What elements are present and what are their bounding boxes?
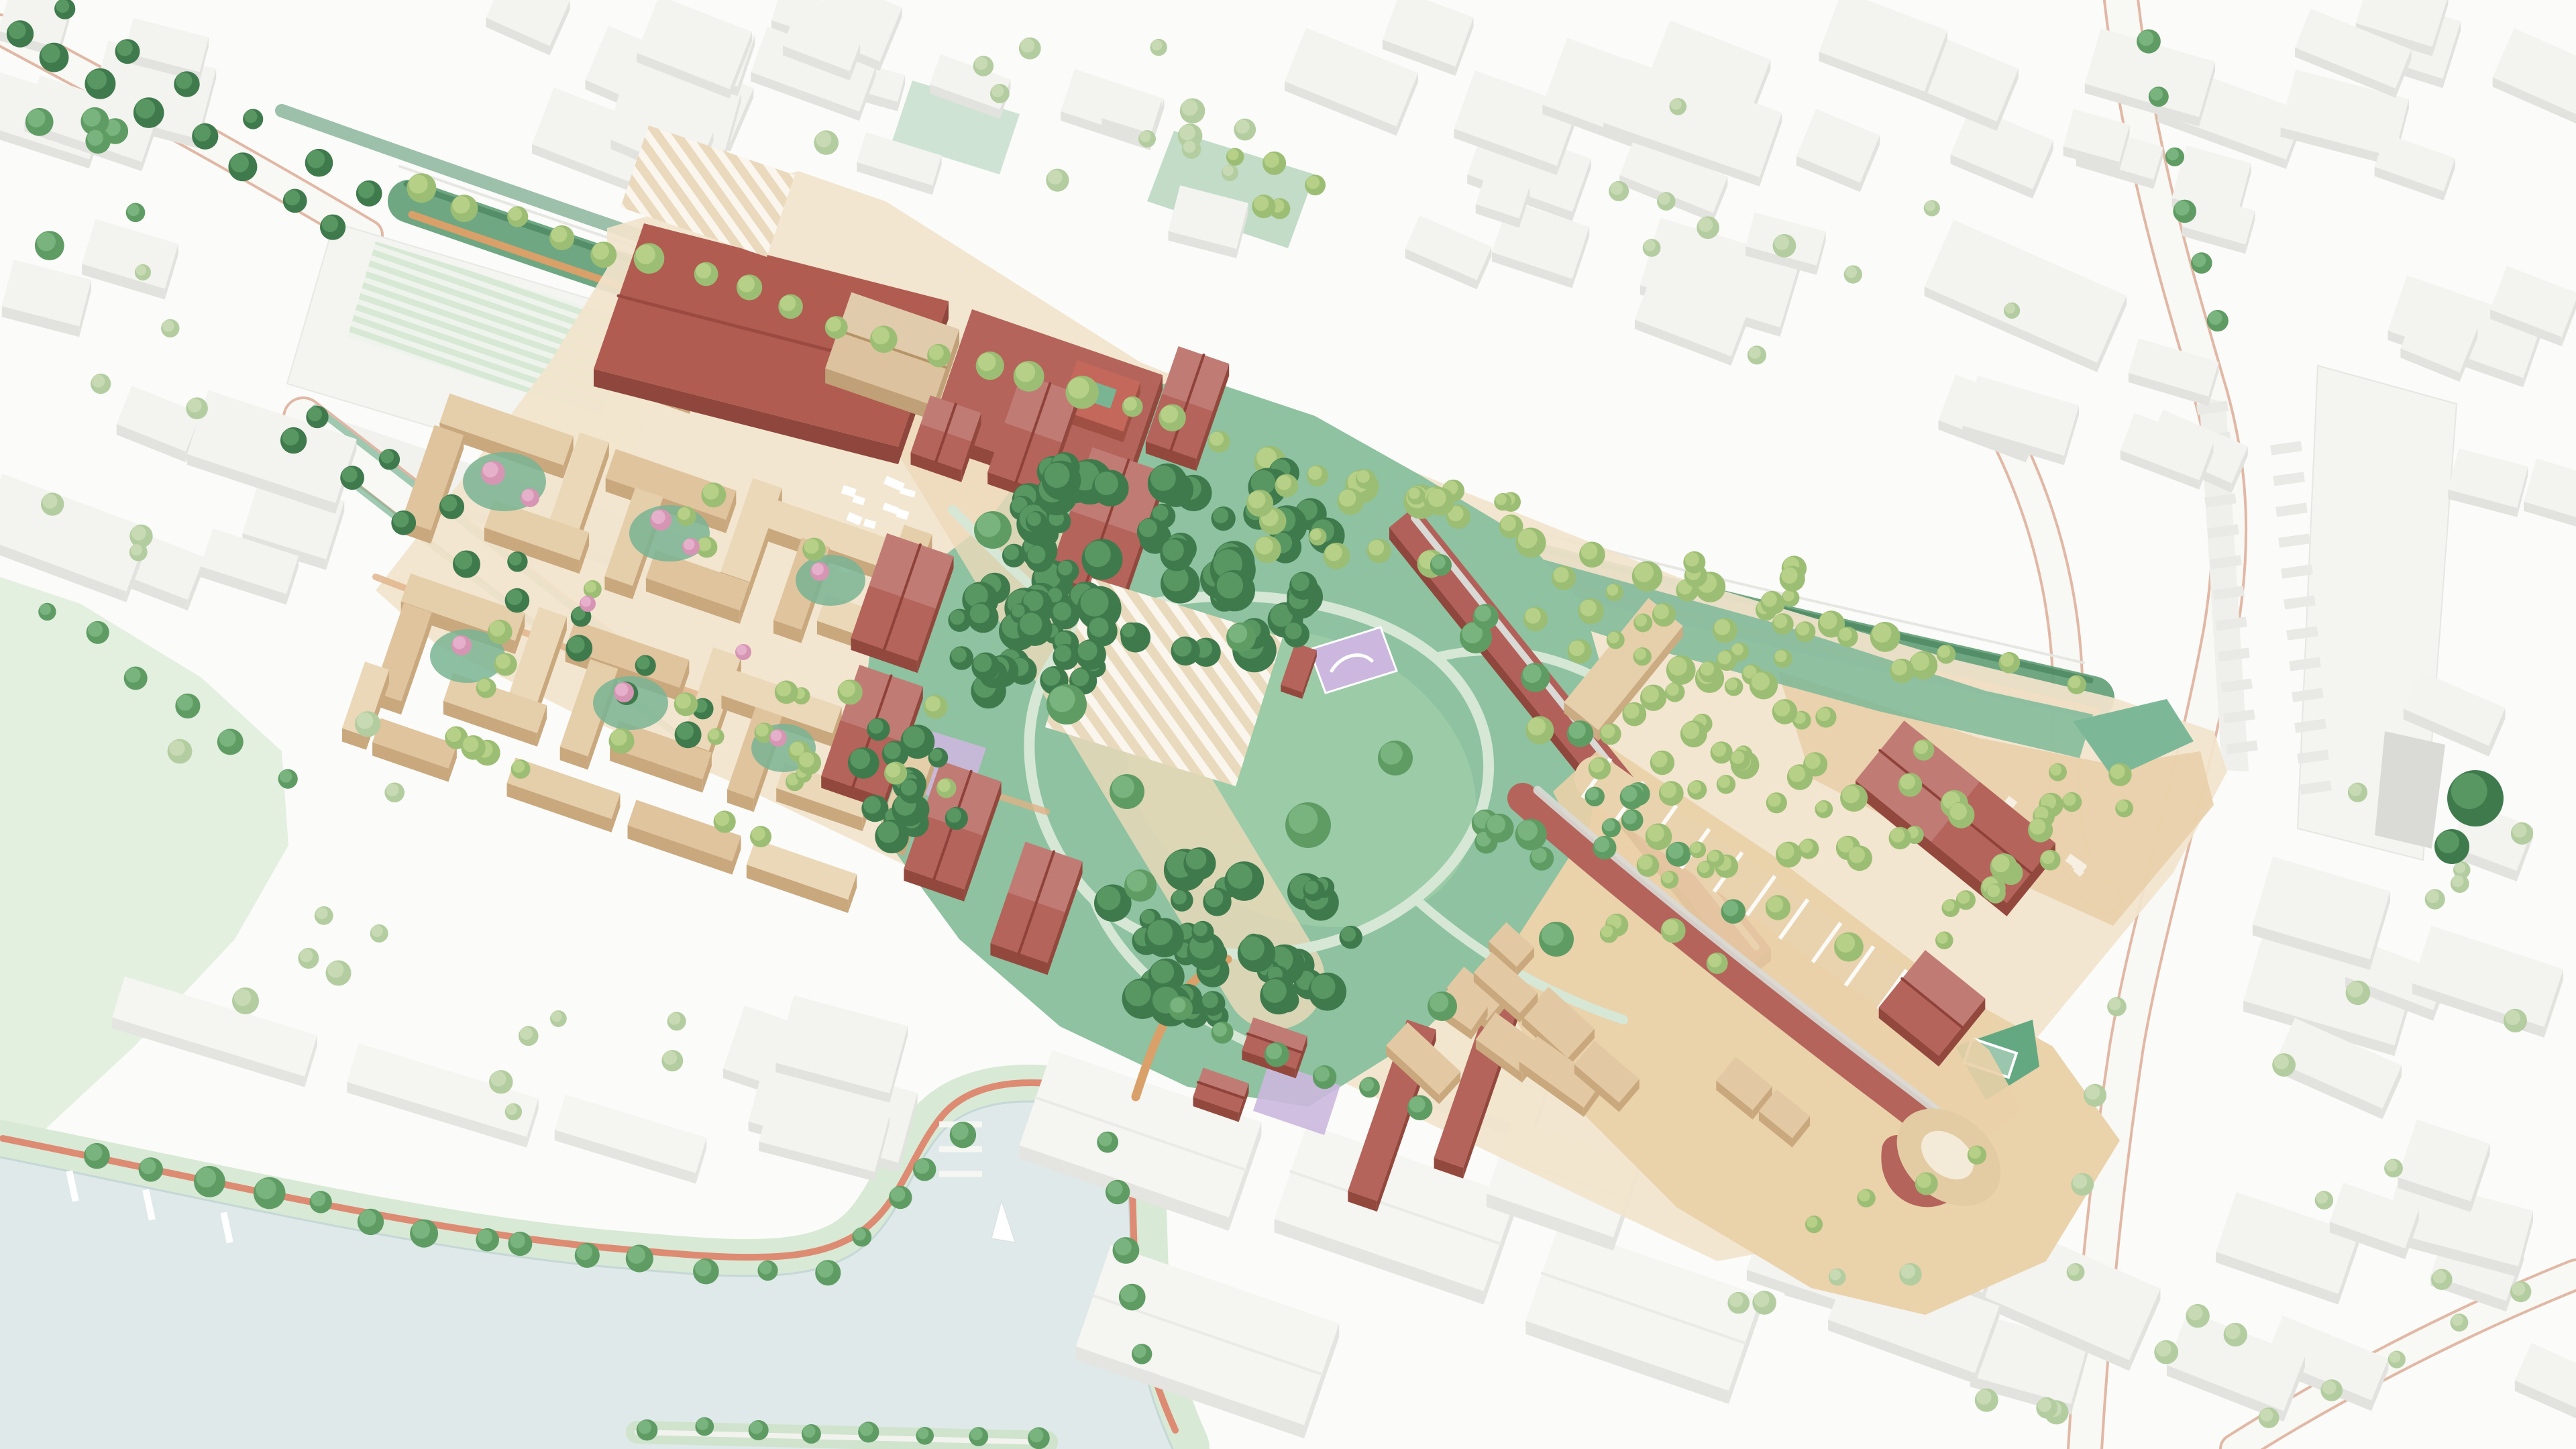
tree-crown-highlight <box>1568 722 1585 739</box>
tree-crown-highlight <box>2512 824 2526 838</box>
tree-crown-highlight <box>2426 890 2439 903</box>
tree-crown-highlight <box>903 727 925 749</box>
tree-crown-highlight <box>1858 1190 1870 1201</box>
tree-crown-highlight <box>452 196 470 213</box>
tree-crown-highlight <box>2452 1314 2463 1326</box>
tree-crown-highlight <box>463 737 478 752</box>
tree-crown-highlight <box>676 722 694 740</box>
platform-canopy-b <box>2278 533 2310 547</box>
tree-crown-highlight <box>826 317 841 332</box>
tree-crown-highlight <box>799 752 814 767</box>
masterplan-rendering <box>0 0 2576 1449</box>
tree-crown-highlight <box>2073 1174 2088 1189</box>
tree-crown-highlight <box>1662 920 1678 936</box>
tree-crown-highlight <box>230 154 249 172</box>
tree-crown-highlight <box>1749 347 1761 359</box>
tree-crown-highlight <box>1213 508 1228 523</box>
tree-crown-highlight <box>1495 494 1507 505</box>
quay-shed <box>112 977 317 1077</box>
tree-crown-highlight <box>739 276 755 292</box>
tree-crown-highlight <box>1357 470 1370 483</box>
tree-crown-highlight <box>2452 875 2464 888</box>
tree-crown-highlight <box>1783 590 1794 601</box>
tree-crown-highlight <box>1525 608 1540 623</box>
tree-crown-highlight <box>1020 38 1034 52</box>
tree-crown-highlight <box>1774 235 1789 250</box>
tree-crown-highlight <box>1140 131 1151 142</box>
tree-crown-highlight <box>1028 545 1046 563</box>
tree-crown-highlight <box>1172 890 1186 904</box>
tree-crown-highlight <box>1647 824 1664 841</box>
tree-crown-highlight <box>1668 657 1687 676</box>
tree-crown-highlight <box>676 694 691 709</box>
tree-crown-highlight <box>176 72 193 89</box>
tree-crown-highlight <box>1768 794 1781 807</box>
tree-crown-highlight <box>284 190 300 205</box>
tree-crown-highlight <box>1638 855 1653 870</box>
tree-crown-highlight <box>2063 793 2076 806</box>
tree-crown-highlight <box>92 375 105 388</box>
tree-crown-highlight <box>1430 993 1448 1012</box>
tree-crown-highlight <box>1789 765 1806 782</box>
tree-crown-highlight <box>360 1210 376 1227</box>
tree-crown-highlight <box>1839 628 1852 641</box>
tree-crown-highlight <box>1240 936 1265 961</box>
tree-crown-highlight <box>1151 40 1162 50</box>
tree-crown-highlight <box>1121 1285 1138 1303</box>
tree-crown-highlight <box>162 320 174 332</box>
tree-crown-highlight <box>1767 896 1783 912</box>
tree-crown-highlight <box>1108 1181 1123 1197</box>
tree-crown-highlight <box>696 1418 708 1430</box>
tree-crown-highlight <box>812 563 824 575</box>
tree-crown-highlight <box>1042 667 1060 686</box>
tree-crown-highlight <box>1845 266 1857 278</box>
tree-crown-highlight <box>1950 803 1967 820</box>
tree-crown-highlight <box>9 21 26 39</box>
courtyard-green <box>629 505 710 561</box>
tree-crown-highlight <box>2274 1055 2289 1069</box>
tree-crown-highlight <box>1055 645 1071 662</box>
tree-crown-highlight <box>1554 567 1569 582</box>
tree-crown-highlight <box>551 227 568 243</box>
tree-crown-highlight <box>1217 572 1243 598</box>
tree-crown-highlight <box>2038 1398 2051 1411</box>
tree-crown-highlight <box>1432 555 1446 570</box>
tree-crown-highlight <box>1969 1146 1981 1159</box>
tree-crown-highlight <box>1058 561 1073 576</box>
tree-crown-highlight <box>478 1230 492 1244</box>
tree-crown-highlight <box>780 295 796 311</box>
tree-crown-highlight <box>2050 764 2061 775</box>
tree-crown-highlight <box>1712 743 1726 757</box>
tree-crown-highlight <box>1542 924 1564 946</box>
tree-crown-highlight <box>1666 683 1679 696</box>
platform-canopy-b <box>2275 502 2308 517</box>
tree-crown-highlight <box>1915 741 1928 754</box>
tree-crown-highlight <box>2451 773 2487 809</box>
tree-crown-highlight <box>131 544 142 555</box>
tree-crown-highlight <box>1816 801 1827 812</box>
tree-crown-highlight <box>1658 193 1670 205</box>
tree-crown-highlight <box>1601 926 1613 938</box>
tree-crown-highlight <box>947 808 961 823</box>
tree-crown-highlight <box>1925 201 1935 211</box>
tree-crown-highlight <box>256 1179 276 1199</box>
tree-crown-highlight <box>393 512 409 528</box>
tree-crown-highlight <box>455 552 472 570</box>
tree-crown-highlight <box>1112 776 1134 798</box>
context-building <box>2493 28 2576 119</box>
tree-crown-highlight <box>1527 718 1546 736</box>
tree-crown-highlight <box>803 1425 816 1438</box>
tree-crown-highlight <box>1289 804 1318 834</box>
tree-crown-highlight <box>759 1262 772 1275</box>
platform-canopy-b <box>2273 472 2305 486</box>
tree-crown-highlight <box>380 450 394 464</box>
tree-crown-highlight <box>1718 776 1730 788</box>
tree-crown-highlight <box>1311 975 1335 999</box>
tree-crown-highlight <box>508 553 521 566</box>
tree-crown-highlight <box>756 724 769 737</box>
tree-crown-highlight <box>1634 648 1646 660</box>
tree-crown-highlight <box>412 1221 430 1239</box>
tree-crown-highlight <box>1151 961 1174 983</box>
tree-crown-highlight <box>1266 1043 1282 1059</box>
tree-crown-highlight <box>703 484 719 500</box>
tree-crown-highlight <box>1595 837 1610 853</box>
tree-crown-highlight <box>1849 847 1865 863</box>
tree-crown-highlight <box>651 511 665 524</box>
tree-crown-highlight <box>973 654 991 672</box>
tree-crown-highlight <box>510 1233 525 1248</box>
tree-crown-highlight <box>508 207 522 221</box>
tree-crown-highlight <box>1685 552 1699 566</box>
tree-crown-highlight <box>1016 362 1035 382</box>
tree-crown-highlight <box>1938 645 1950 657</box>
tree-crown-highlight <box>585 581 596 592</box>
tree-crown-highlight <box>1654 604 1669 620</box>
tree-crown-highlight <box>708 729 719 740</box>
tree-crown-highlight <box>2086 1085 2100 1099</box>
tree-crown-highlight <box>136 265 146 275</box>
tree-crown-highlight <box>219 730 236 747</box>
tree-crown-highlight <box>1305 881 1319 895</box>
tree-crown-highlight <box>1817 708 1831 721</box>
tree-crown-highlight <box>2506 1010 2520 1025</box>
tree-crown-highlight <box>1778 843 1794 860</box>
tree-crown-highlight <box>386 784 398 796</box>
tree-crown-highlight <box>372 925 383 936</box>
tree-crown-highlight <box>1729 1293 1743 1307</box>
tree-crown-highlight <box>551 1011 562 1022</box>
tree-crown-highlight <box>1624 704 1640 719</box>
tree-crown-highlight <box>1796 623 1810 636</box>
tree-crown-highlight <box>1601 724 1615 739</box>
tree-crown-highlight <box>1569 641 1585 656</box>
tree-crown-highlight <box>1248 491 1266 508</box>
tree-crown-highlight <box>2068 676 2080 688</box>
tree-crown-highlight <box>42 44 60 63</box>
tree-crown-highlight <box>1660 782 1676 798</box>
courtyard-green <box>796 555 865 606</box>
tree-crown-highlight <box>1890 828 1904 842</box>
tree-crown-highlight <box>891 1187 906 1202</box>
tree-crown-highlight <box>1830 1269 1841 1280</box>
tree-crown-highlight <box>1097 886 1121 910</box>
tree-crown-highlight <box>2455 862 2465 873</box>
tree-crown-highlight <box>863 796 881 814</box>
tree-crown-highlight <box>869 719 883 734</box>
tree-crown-highlight <box>2041 851 2055 864</box>
tree-crown-highlight <box>1122 624 1136 638</box>
tree-crown-highlight <box>1085 541 1111 567</box>
tree-crown-highlight <box>2156 1342 2171 1357</box>
tree-crown-highlight <box>37 232 56 251</box>
tree-crown-highlight <box>1179 125 1195 140</box>
tree-crown-highlight <box>615 684 628 696</box>
tree-crown-highlight <box>1487 815 1506 834</box>
tree-crown-highlight <box>1900 774 1915 790</box>
tree-crown-highlight <box>1901 1265 1915 1279</box>
tree-crown-highlight <box>1731 751 1745 764</box>
tree-crown-highlight <box>478 679 490 692</box>
tree-crown-highlight <box>2108 998 2121 1010</box>
tree-crown-highlight <box>1285 623 1302 639</box>
tree-crown-highlight <box>1517 820 1538 841</box>
tree-crown-highlight <box>1308 466 1322 480</box>
tree-crown-highlight <box>490 621 505 637</box>
tree-crown-highlight <box>698 538 711 551</box>
tree-crown-highlight <box>1608 632 1619 643</box>
tree-crown-highlight <box>40 604 51 615</box>
tree-crown-highlight <box>1428 489 1446 507</box>
tree-crown-highlight <box>1228 149 1239 160</box>
tree-crown-highlight <box>1957 892 1970 904</box>
tree-crown-highlight <box>169 741 184 756</box>
tree-crown-highlight <box>970 604 989 623</box>
tree-crown-highlight <box>1668 843 1684 859</box>
tree-crown-highlight <box>1762 592 1777 607</box>
tree-crown-highlight <box>1161 406 1178 423</box>
tree-crown-highlight <box>327 962 343 978</box>
tree-crown-highlight <box>1048 170 1063 184</box>
tree-crown-highlight <box>1027 512 1041 526</box>
tree-crown-highlight <box>1872 623 1892 643</box>
tree-crown-highlight <box>311 1192 325 1206</box>
tree-crown-highlight <box>1126 871 1147 892</box>
tree-crown-highlight <box>1690 843 1701 853</box>
tree-crown-highlight <box>483 462 498 478</box>
tree-crown-highlight <box>1053 602 1071 621</box>
tree-crown-highlight <box>1635 614 1647 627</box>
tree-crown-highlight <box>884 742 901 759</box>
tree-crown-highlight <box>1807 1216 1818 1228</box>
tree-crown-highlight <box>1976 1389 1991 1404</box>
tree-crown-highlight <box>684 539 695 550</box>
tree-crown-highlight <box>576 1244 592 1260</box>
tree-crown-highlight <box>1610 182 1623 195</box>
tree-crown-highlight <box>506 590 522 605</box>
tree-crown-highlight <box>2175 201 2190 215</box>
tree-crown-highlight <box>2116 800 2128 812</box>
tree-crown-highlight <box>804 539 819 553</box>
tree-crown-highlight <box>316 907 328 919</box>
tree-crown-highlight <box>568 637 584 653</box>
tree-crown-highlight <box>1820 612 1837 629</box>
tree-crown-highlight <box>1341 927 1356 942</box>
tree-crown-highlight <box>1193 922 1207 936</box>
tree-crown-highlight <box>1125 980 1151 1006</box>
tree-crown-highlight <box>737 645 747 655</box>
tree-crown-highlight <box>1700 662 1714 676</box>
tree-crown-highlight <box>663 1051 678 1065</box>
tree-crown-highlight <box>42 494 57 508</box>
tree-crown-highlight <box>695 1260 712 1277</box>
tree-crown-highlight <box>1068 378 1089 399</box>
tree-crown-highlight <box>131 526 146 541</box>
platform-canopy-b <box>2270 441 2302 455</box>
tree-crown-highlight <box>140 1159 156 1174</box>
tree-crown-highlight <box>2385 1160 2398 1172</box>
tree-crown-highlight <box>1228 624 1247 643</box>
tree-crown-highlight <box>610 729 627 745</box>
tree-crown-highlight <box>1409 488 1420 499</box>
tree-crown-highlight <box>1800 840 1813 853</box>
tree-crown-highlight <box>637 656 650 669</box>
tree-crown-highlight <box>991 85 1004 97</box>
context-building <box>1925 220 2127 363</box>
tree-crown-highlight <box>885 763 900 777</box>
tree-crown-highlight <box>1943 900 1954 912</box>
tree-crown-highlight <box>2030 818 2046 835</box>
tree-crown-highlight <box>1682 722 1700 739</box>
tree-crown-highlight <box>1227 863 1252 889</box>
tree-crown-highlight <box>2139 31 2154 46</box>
tree-crown-highlight <box>2068 1264 2080 1275</box>
tree-crown-highlight <box>1265 153 1279 168</box>
tree-crown-highlight <box>1652 752 1667 767</box>
tree-crown-highlight <box>357 712 374 729</box>
tree-crown-highlight <box>636 245 655 264</box>
tree-crown-highlight <box>696 263 711 278</box>
tree-crown-highlight <box>1202 992 1218 1008</box>
tree-crown-highlight <box>1256 537 1273 555</box>
tree-crown-highlight <box>1325 544 1342 561</box>
tree-crown-highlight <box>1518 529 1538 549</box>
tree-crown-highlight <box>1306 176 1320 189</box>
tree-crown-highlight <box>86 1144 103 1161</box>
tree-crown-highlight <box>1081 588 1109 616</box>
tree-crown-highlight <box>938 780 951 792</box>
tree-crown-highlight <box>496 654 511 669</box>
tree-crown-highlight <box>506 1104 517 1115</box>
tree-crown-highlight <box>1263 979 1287 1003</box>
tree-crown-highlight <box>776 682 791 696</box>
tree-crown-highlight <box>952 1123 969 1140</box>
water-body <box>0 1102 1173 1449</box>
tree-crown-highlight <box>1223 166 1234 176</box>
tree-crown-highlight <box>127 204 140 216</box>
tree-crown-highlight <box>522 489 534 501</box>
tree-crown-highlight <box>2000 653 2014 667</box>
tree-crown-highlight <box>669 1013 681 1025</box>
tree-crown-highlight <box>1213 1022 1227 1036</box>
tree-crown-highlight <box>2390 1352 2401 1363</box>
tree-crown-highlight <box>87 130 103 146</box>
tree-crown-highlight <box>1150 466 1176 491</box>
tree-crown-highlight <box>977 513 1001 537</box>
tree-crown-highlight <box>2110 764 2125 779</box>
tree-crown-highlight <box>117 40 133 56</box>
tree-crown-highlight <box>1163 539 1184 561</box>
tree-crown-highlight <box>2316 1192 2328 1204</box>
tree-crown-highlight <box>1892 660 1907 676</box>
tree-crown-highlight <box>1836 934 1855 953</box>
tree-crown-highlight <box>877 821 899 843</box>
tree-crown-highlight <box>1718 651 1731 664</box>
tree-crown-highlight <box>1310 529 1322 540</box>
tree-crown-highlight <box>1708 954 1721 967</box>
tree-crown-highlight <box>581 596 591 606</box>
tree-crown-highlight <box>1044 463 1070 488</box>
tree-crown-highlight <box>715 812 729 826</box>
tree-crown-highlight <box>56 0 69 13</box>
tree-crown-highlight <box>978 353 996 371</box>
tree-crown-highlight <box>1642 686 1659 703</box>
tree-crown-highlight <box>917 1428 928 1439</box>
tree-crown-highlight <box>1580 600 1597 616</box>
tree-crown-highlight <box>1124 397 1137 411</box>
tree-crown-highlight <box>1937 932 1948 944</box>
tree-crown-highlight <box>453 637 466 649</box>
tree-crown-highlight <box>358 182 375 199</box>
tree-crown-highlight <box>1095 472 1118 495</box>
tree-crown-highlight <box>447 727 462 742</box>
tree-crown-highlight <box>1114 1238 1131 1255</box>
tree-crown-highlight <box>1621 786 1637 802</box>
tree-crown-highlight <box>1523 664 1542 683</box>
tree-crown-highlight <box>628 1246 645 1264</box>
tree-crown-highlight <box>1775 650 1787 662</box>
tree-crown-highlight <box>1992 855 2009 872</box>
tree-crown-highlight <box>1147 920 1173 945</box>
tree-crown-highlight <box>839 681 855 697</box>
tree-crown-highlight <box>1917 1173 1931 1188</box>
tree-crown-highlight <box>194 125 211 142</box>
tree-crown-highlight <box>853 1228 865 1240</box>
tree-crown-highlight <box>1590 758 1604 772</box>
tree-crown-highlight <box>177 695 193 711</box>
tree-crown-highlight <box>859 1423 873 1436</box>
tree-crown-highlight <box>1254 196 1269 211</box>
tree-crown-highlight <box>750 1421 763 1434</box>
tree-crown-highlight <box>1623 810 1637 824</box>
tree-crown-highlight <box>925 696 941 712</box>
tree-crown-highlight <box>83 109 101 127</box>
tree-crown-highlight <box>816 131 831 147</box>
tree-crown-highlight <box>2192 254 2206 267</box>
tree-crown-highlight <box>1205 889 1223 907</box>
tree-crown-highlight <box>2225 1324 2241 1340</box>
tree-crown-highlight <box>1842 786 1860 803</box>
tree-crown-highlight <box>188 398 202 413</box>
quay-shed <box>347 1043 538 1136</box>
aerial-masterplan-scene <box>0 0 2576 1449</box>
tree-crown-highlight <box>771 730 782 741</box>
tree-crown-highlight <box>513 761 525 773</box>
tree-crown-highlight <box>2005 303 2015 313</box>
